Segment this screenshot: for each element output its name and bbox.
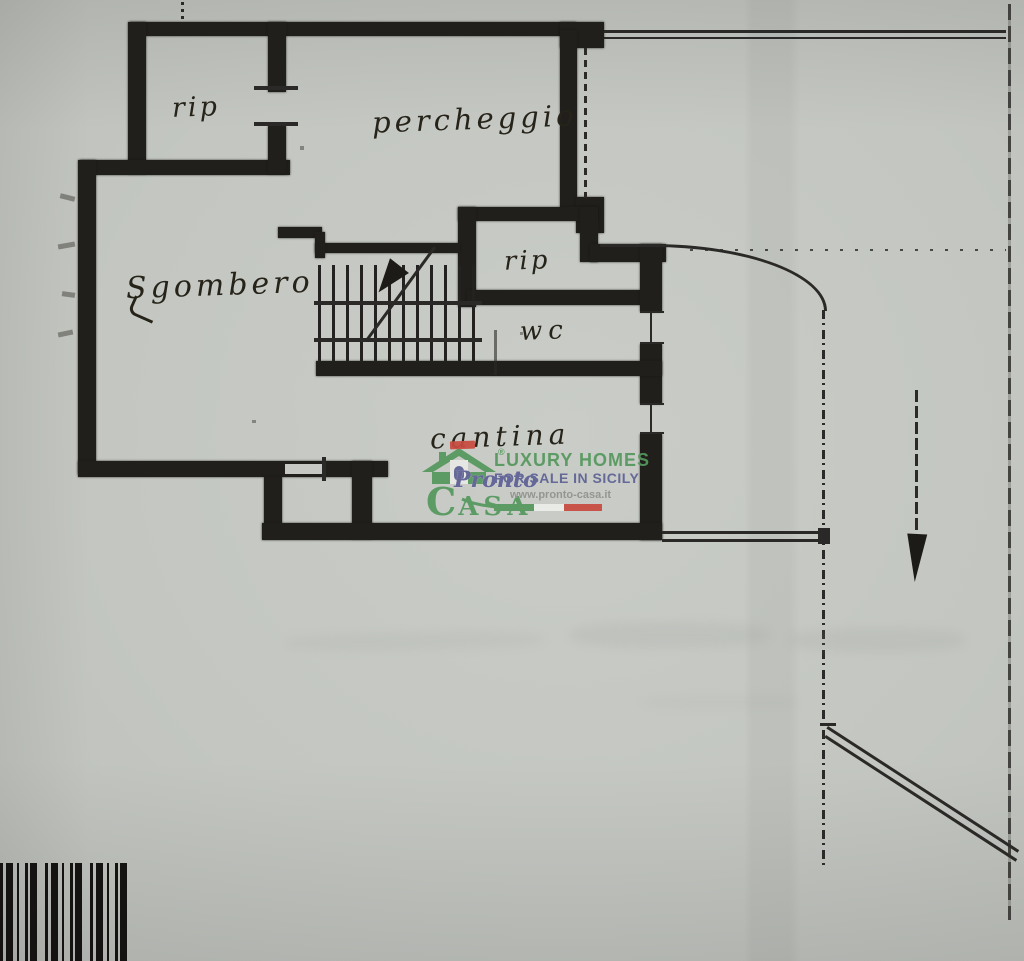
room-label-rip-top: rip [171,91,220,124]
thin-double-h-a [662,531,826,534]
wall-mid-bottom [316,361,662,376]
bleed-through-smudge [570,622,770,648]
wall-top [130,22,576,36]
watermark-logo: ® Pronto CASA LUXURY HOMES FOR SALE IN S… [418,441,628,521]
ramp-edge-line-b [824,735,1017,862]
room-label-sgombero: Sgombero [125,265,314,307]
wall-outer-left [78,160,96,474]
door-opening [285,464,323,474]
dotted-stub-top [181,2,184,22]
scan-hatch-mark [58,242,76,250]
door-leaf-line [650,404,652,434]
wall-vestibule-left [264,477,282,527]
wall-rip-top-left [128,22,146,174]
wall-rip-top-bottom [80,160,290,175]
scan-speck [300,146,304,150]
scan-speck [252,420,256,423]
flag-green-segment [494,504,534,511]
corner-piece [818,528,830,544]
group-ribbon-icon [450,441,475,450]
brand-casa-initial: C [426,479,458,524]
wall-sgombero-bottom [78,461,388,477]
barcode [0,863,135,961]
ramp-arrow-icon [905,534,927,583]
gate-swing-arc [652,244,827,311]
floor-plan-scan: rip percheggio Sgombero rip wc cantina ®… [0,0,1024,961]
bleed-through-smudge [790,628,965,652]
room-label-wc: wc [519,315,569,347]
door-jamb-tick [322,457,326,481]
bleed-through-smudge [640,695,800,709]
wall-rip-wc-divider [467,290,643,305]
flag-red-segment [564,504,602,511]
wall-stub-v [315,232,325,258]
wall-stairs-top [315,243,460,253]
stair-rail-lower [314,338,482,342]
tagline-luxury-homes: LUXURY HOMES [494,450,650,471]
door-leaf-line [650,312,652,344]
tagline-for-sale: FOR SALE IN SICILY [494,470,639,486]
thin-double-h-b [662,539,826,542]
stair-rail-upper [314,301,482,305]
ramp-arrow-line [915,390,918,538]
scan-hatch-mark [58,329,74,337]
wall-cantina-bottom [262,523,662,540]
wall-rip-top-right-b [268,126,286,174]
door-jamb-tick [640,403,664,405]
wall-rip-top-right-a [268,22,286,92]
door-jamb-tick [254,86,298,90]
dotted-line-horizontal [690,249,1006,251]
door-jamb-tick [640,311,664,313]
ramp-edge-line-a [826,726,1019,853]
boundary-line-right [1008,4,1011,920]
door-jamb-tick [640,432,664,434]
wall-rip-mid-top [458,207,598,221]
room-label-rip-mid: rip [503,245,550,277]
boundary-double-line-a [604,30,1006,33]
door-jamb-tick [254,122,298,126]
dash-dot-line-vertical [822,310,825,870]
bleed-through-smudge [285,630,545,653]
scan-hatch-mark [60,193,76,201]
door-jamb-tick [640,342,664,344]
dashed-line-vertical [584,48,587,198]
boundary-double-line-b [604,37,1006,39]
scan-hatch-mark [62,291,76,298]
flag-white-segment [534,504,564,511]
partition-thin-line [494,330,497,375]
gate-line-stub [600,244,658,247]
room-label-parcheggio: percheggio [371,98,578,139]
